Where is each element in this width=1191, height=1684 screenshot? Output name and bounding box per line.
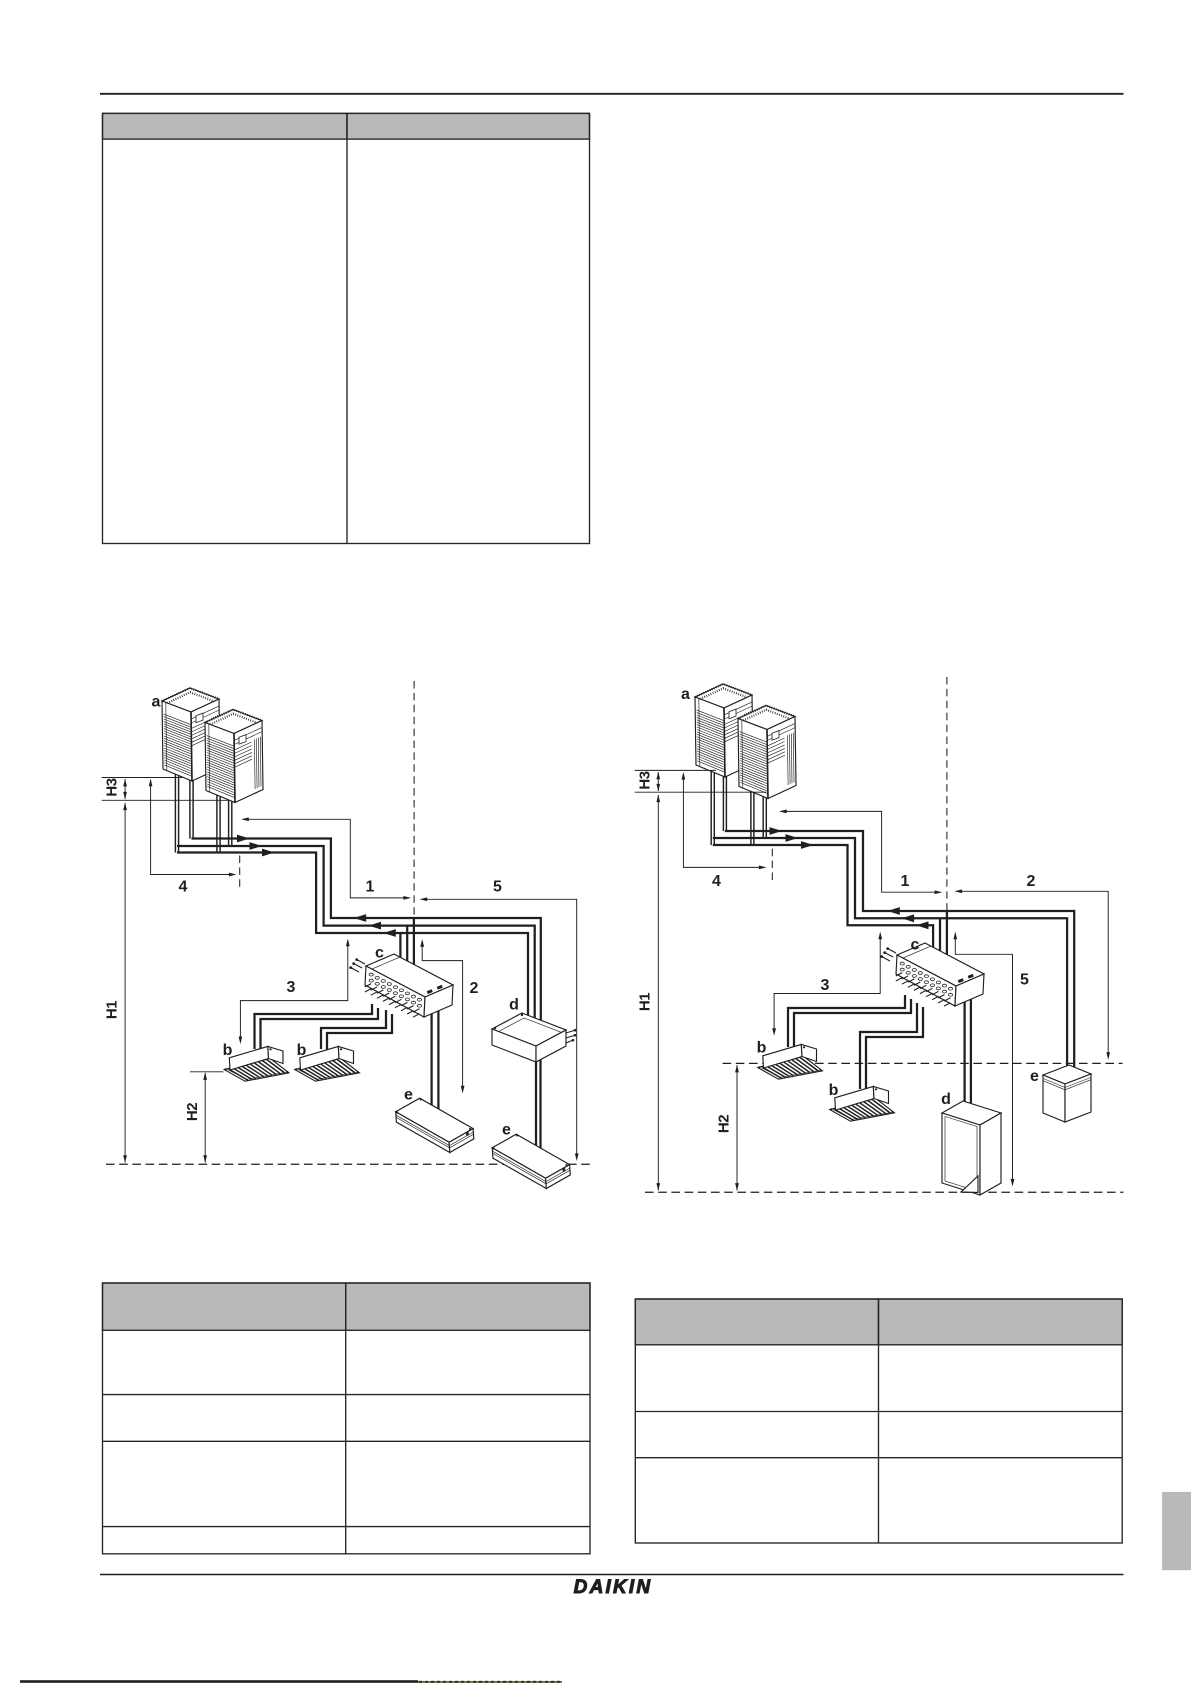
svg-text:e: e (404, 1087, 413, 1104)
svg-text:2: 2 (1027, 873, 1036, 890)
svg-text:3: 3 (287, 979, 296, 996)
svg-text:H2: H2 (184, 1103, 201, 1121)
svg-text:H2: H2 (716, 1115, 733, 1133)
svg-text:c: c (375, 945, 384, 962)
svg-text:d: d (509, 997, 519, 1014)
svg-text:5: 5 (493, 879, 502, 896)
svg-text:4: 4 (712, 873, 721, 890)
svg-text:H1: H1 (637, 993, 654, 1011)
svg-text:b: b (757, 1040, 767, 1057)
svg-text:d: d (941, 1091, 951, 1108)
svg-text:1: 1 (366, 879, 375, 896)
svg-text:5: 5 (1020, 972, 1029, 989)
svg-text:1: 1 (901, 873, 910, 890)
svg-text:H3: H3 (637, 771, 654, 789)
svg-text:H3: H3 (104, 778, 121, 796)
svg-text:H1: H1 (104, 1001, 121, 1019)
svg-text:b: b (829, 1082, 839, 1099)
svg-text:b: b (297, 1042, 307, 1059)
svg-text:c: c (911, 937, 920, 954)
svg-text:2: 2 (470, 980, 479, 997)
svg-text:a: a (681, 686, 690, 703)
svg-text:3: 3 (821, 977, 830, 994)
svg-text:a: a (152, 694, 161, 711)
svg-text:e: e (1030, 1068, 1039, 1085)
svg-text:4: 4 (179, 879, 188, 896)
svg-text:e: e (502, 1122, 511, 1139)
svg-text:b: b (223, 1042, 233, 1059)
svg-text:DAIKIN: DAIKIN (574, 1577, 653, 1598)
